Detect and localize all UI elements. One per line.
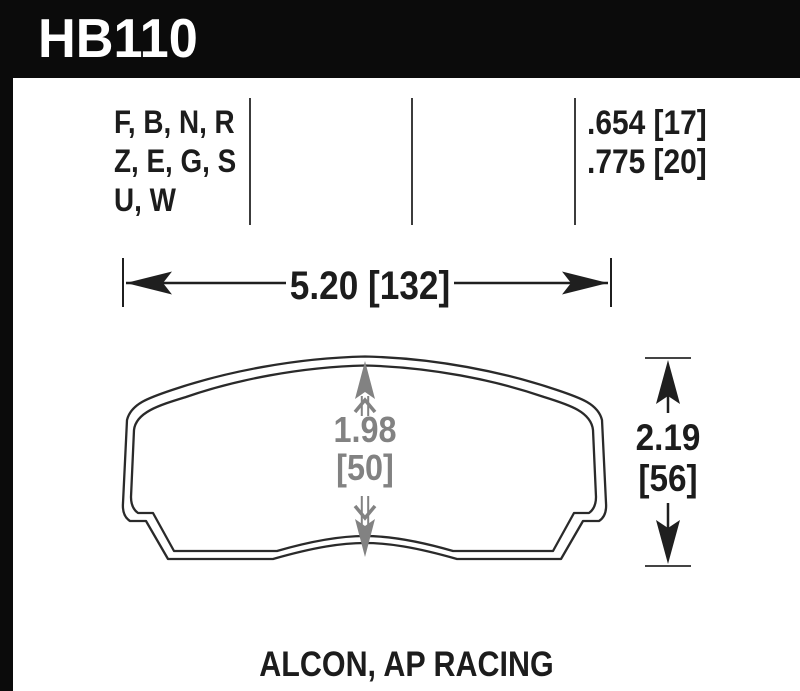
depth-millimeters: [50] [311, 449, 419, 487]
height-inches: 2.19 [614, 417, 722, 458]
depth-chevron-down-icon [355, 506, 375, 518]
caliper-applications: ALCON, AP RACING [64, 645, 749, 685]
depth-arrowhead-down-icon [355, 519, 375, 557]
diagram-linework [0, 0, 800, 691]
height-dimension-label: 2.19 [56] [614, 417, 722, 499]
height-millimeters: [56] [614, 458, 722, 499]
depth-dimension-label: 1.98 [50] [311, 411, 419, 487]
width-dimension-label: 5.20 [132] [282, 264, 458, 309]
depth-inches: 1.98 [311, 411, 419, 449]
spec-diagram: HB110 F, B, N, R Z, E, G, S U, W .654 [1… [0, 0, 800, 691]
